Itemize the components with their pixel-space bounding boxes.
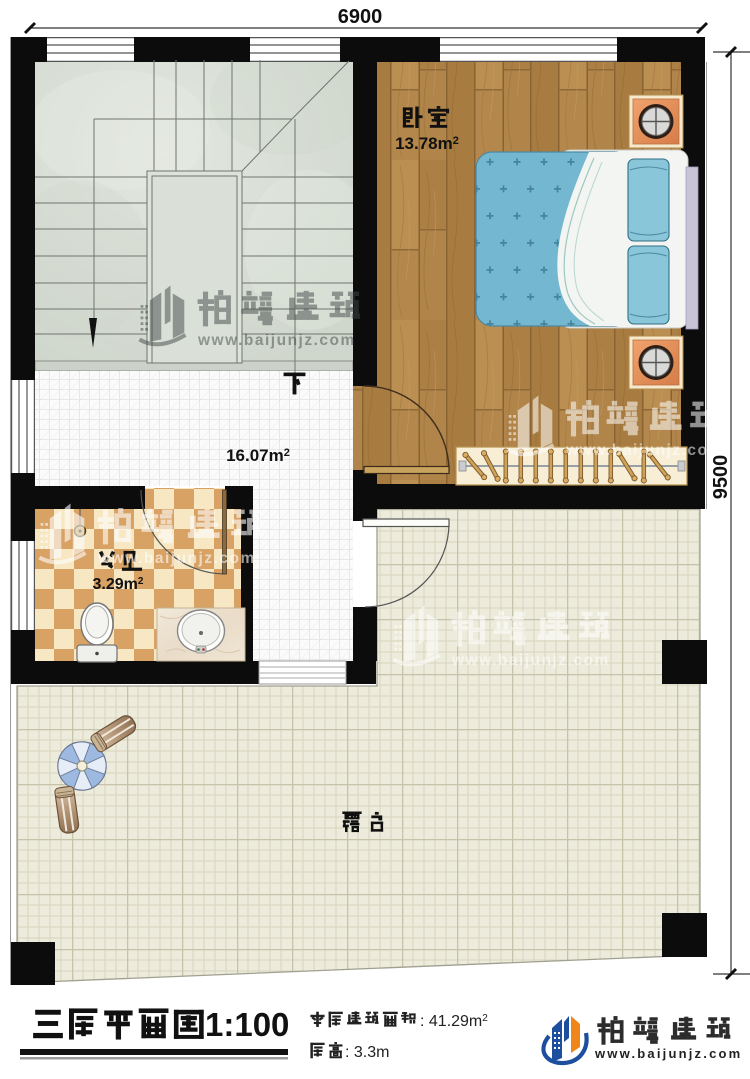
svg-text:: 41.29m2: : 41.29m2 xyxy=(420,1013,488,1030)
svg-text:: 3.3m: : 3.3m xyxy=(345,1044,389,1061)
svg-text:www.baijunjz.com: www.baijunjz.com xyxy=(97,550,256,567)
svg-text:www.baijunjz.com: www.baijunjz.com xyxy=(197,332,356,349)
svg-text:1:100: 1:100 xyxy=(205,1006,289,1043)
svg-text:www.baijunjz.com: www.baijunjz.com xyxy=(565,442,724,459)
svg-text:16.07m2: 16.07m2 xyxy=(226,446,290,465)
svg-text:9500: 9500 xyxy=(710,455,732,500)
svg-text:3.29m2: 3.29m2 xyxy=(93,576,144,593)
svg-text:6900: 6900 xyxy=(338,6,383,28)
svg-text:www.baijunjz.com: www.baijunjz.com xyxy=(594,1046,742,1061)
svg-text:www.baijunjz.com: www.baijunjz.com xyxy=(451,652,610,669)
svg-text:13.78m2: 13.78m2 xyxy=(395,134,459,153)
